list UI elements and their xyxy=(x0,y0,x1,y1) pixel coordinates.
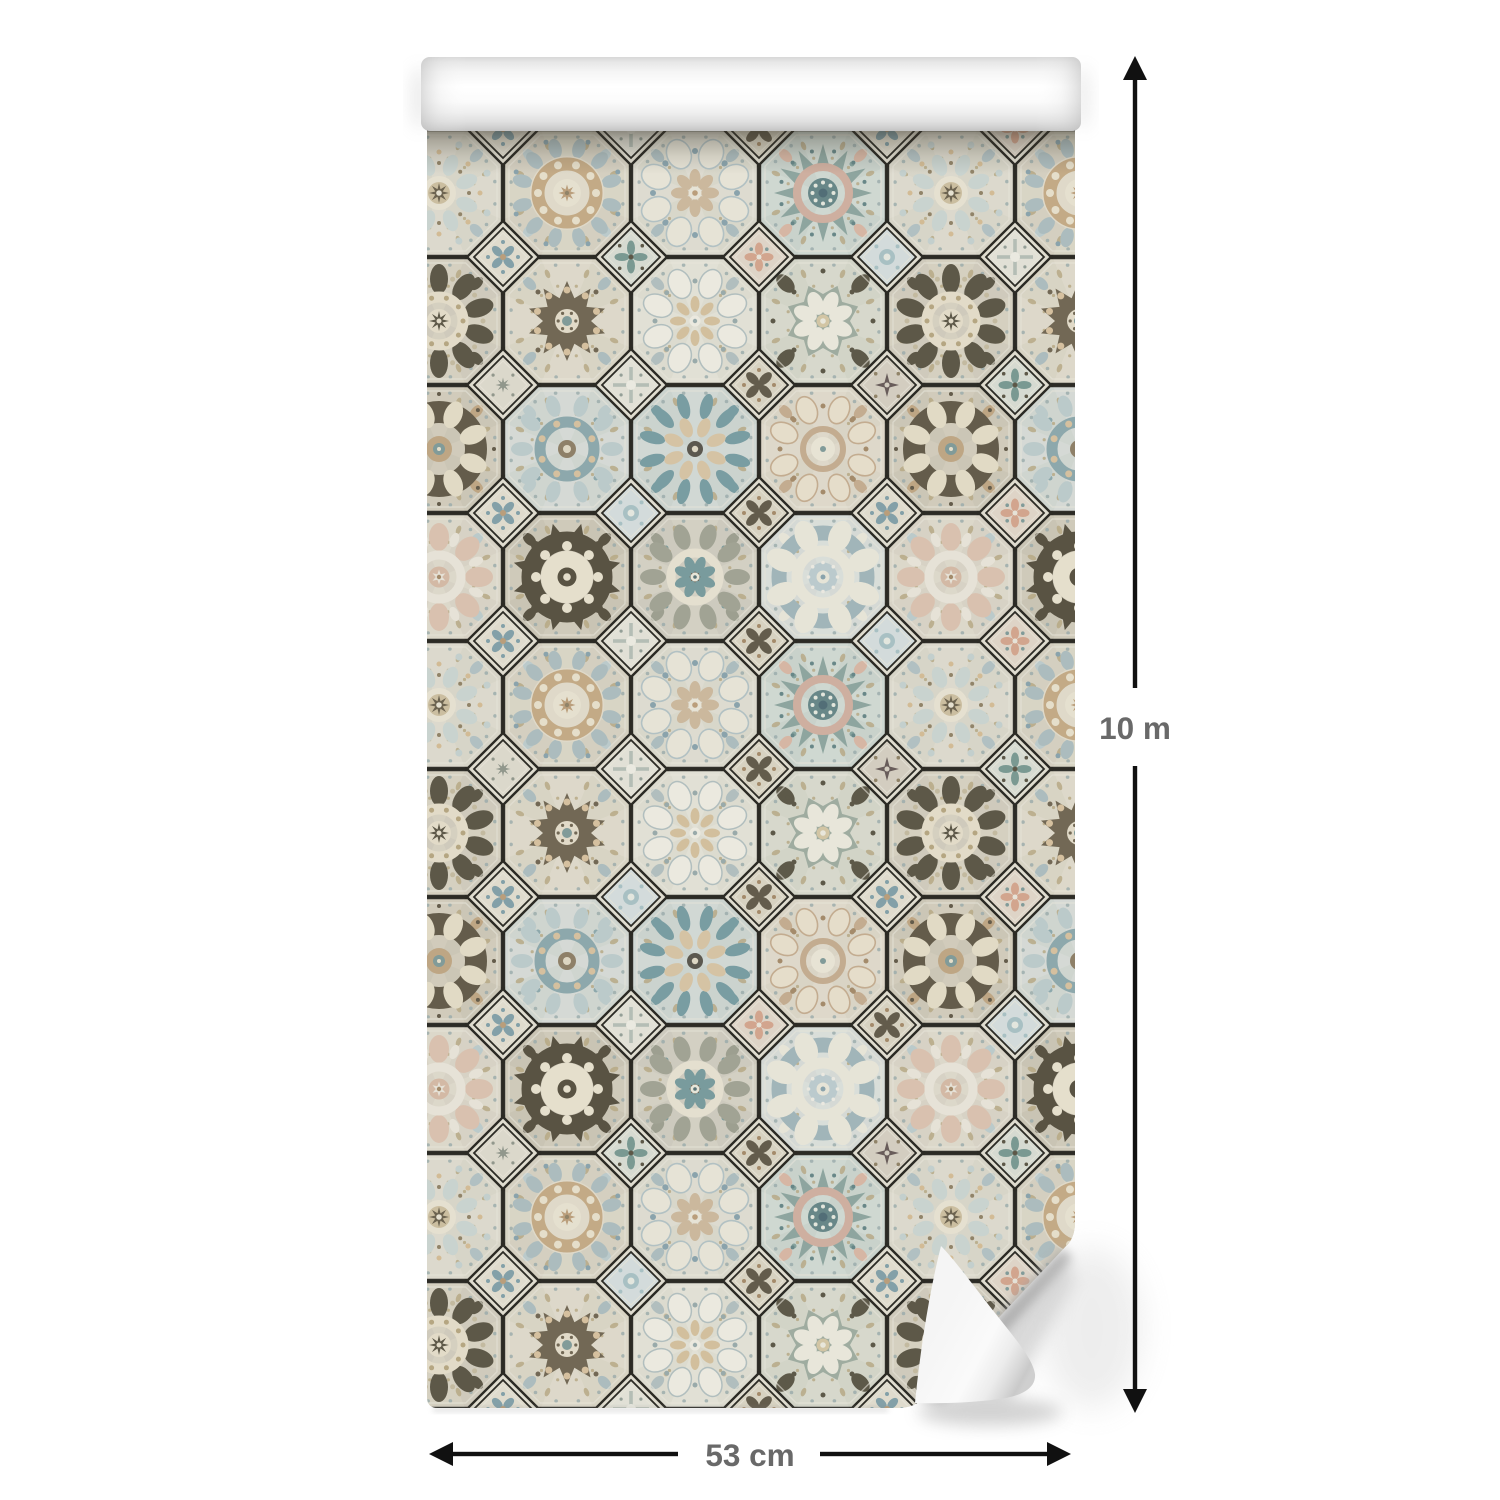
svg-text:10 m: 10 m xyxy=(1099,710,1171,746)
svg-text:53 cm: 53 cm xyxy=(705,1437,794,1473)
